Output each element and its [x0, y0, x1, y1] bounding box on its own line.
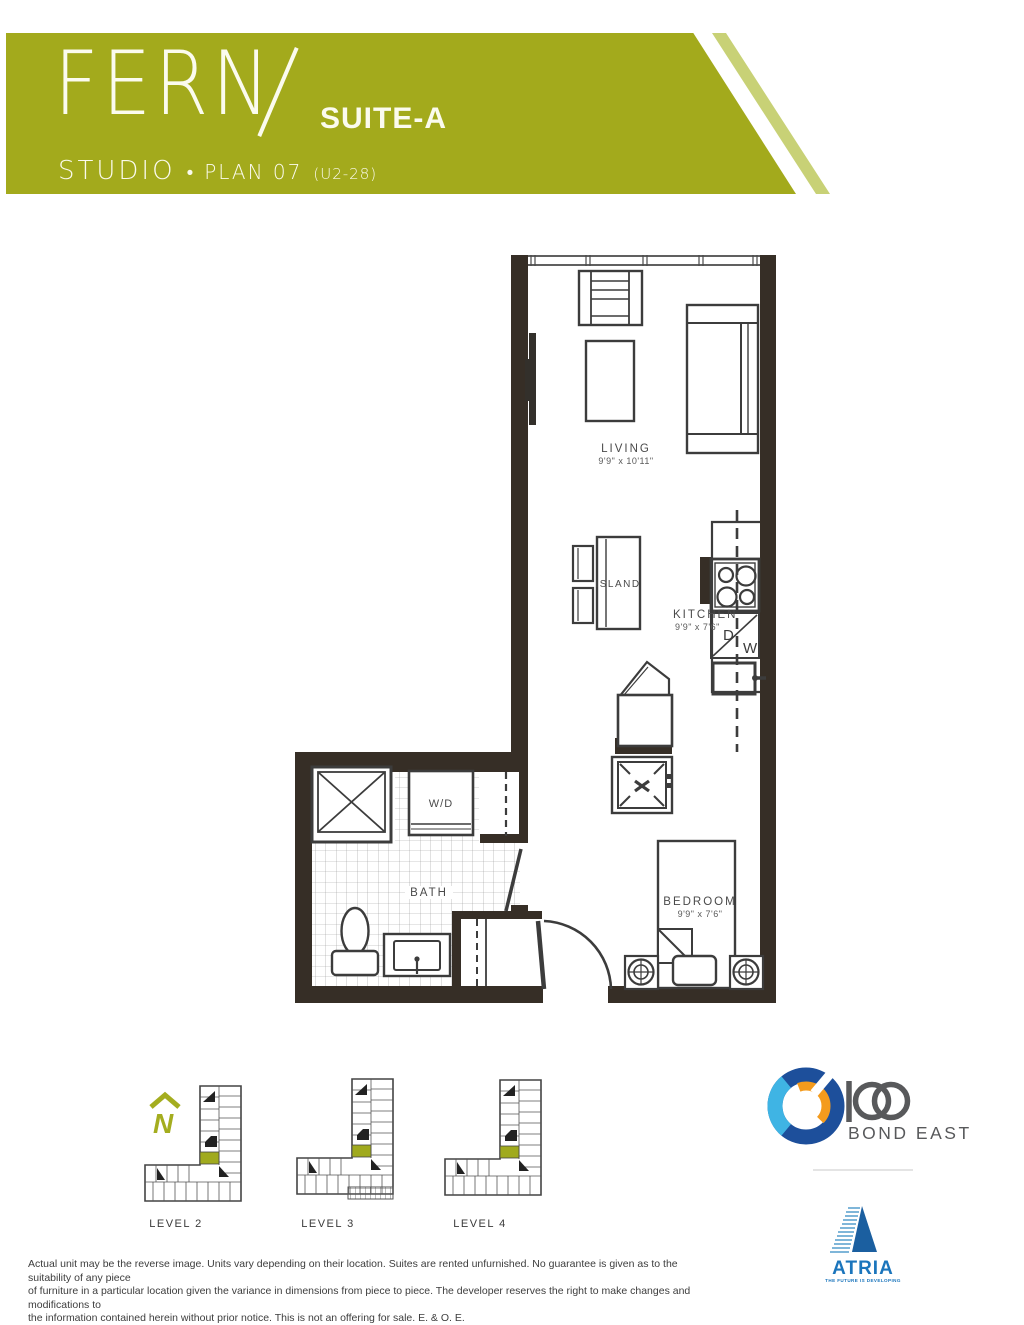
nightstand-lamp-left — [625, 956, 658, 989]
north-letter: N — [153, 1108, 174, 1139]
level-2-label: LEVEL 2 — [149, 1218, 203, 1230]
floor-plan-svg: LIVING 9'9" x 10'11" — [0, 0, 1024, 1325]
bath-label-group: BATH — [405, 886, 453, 899]
island-stools — [573, 546, 593, 623]
living-room — [525, 271, 758, 453]
living-dims: 9'9" x 10'11" — [598, 456, 653, 466]
island-label: ISLAND — [595, 579, 640, 590]
utility-closet — [612, 757, 672, 813]
window-wall — [528, 255, 760, 266]
entry — [461, 919, 611, 989]
suite-floor-plan: LIVING 9'9" x 10'11" — [295, 255, 776, 1003]
atria-logo: ATRIA THE FUTURE IS DEVELOPING — [825, 1206, 901, 1283]
wd-label-group: W/D — [429, 798, 453, 810]
level-3-label: LEVEL 3 — [301, 1218, 355, 1230]
pantry-cabinet — [618, 662, 672, 746]
coffee-table — [586, 341, 634, 421]
kitchen-label: KITCHEN — [673, 609, 737, 621]
kitchen-dims: 9'9" x 7'6" — [675, 622, 720, 632]
disclaimer-text: Actual unit may be the reverse image. Un… — [28, 1258, 718, 1325]
bond-circle-icon — [775, 1070, 837, 1137]
bedroom-dims: 9'9" x 7'6" — [678, 909, 723, 919]
disclaimer-line-2: of furniture in a particular location gi… — [28, 1285, 718, 1312]
bedroom-label: BEDROOM — [663, 896, 736, 908]
bond-east-wordmark: BOND EAST — [848, 1123, 972, 1143]
brochure-page: FERN SUITE-A STUDIO • PLAN 07 (U2-28) — [0, 0, 1024, 1325]
pillow — [673, 956, 716, 985]
bath-label: BATH — [410, 887, 448, 899]
disclaimer-line-1: Actual unit may be the reverse image. Un… — [28, 1258, 718, 1285]
stove — [711, 559, 759, 611]
dishwasher-letter-w: W — [743, 640, 758, 657]
kitchen — [573, 510, 766, 752]
disclaimer-line-3: the information contained herein without… — [28, 1312, 718, 1325]
entry-door-swing — [544, 921, 611, 989]
dishwasher-letter-d: D — [723, 627, 734, 644]
atria-tagline: THE FUTURE IS DEVELOPING — [825, 1278, 901, 1283]
atria-mark-icon — [830, 1206, 877, 1252]
north-arrow-icon: N — [151, 1095, 179, 1139]
vanity-sink — [384, 934, 450, 976]
level-4-label: LEVEL 4 — [453, 1218, 507, 1230]
bond-number-glyph — [849, 1081, 908, 1122]
armchair — [579, 271, 642, 325]
keyplan-level-4 — [445, 1080, 541, 1195]
nightstand-lamp-right — [730, 956, 763, 989]
shower — [312, 767, 391, 842]
sofa — [687, 305, 758, 453]
kitchen-sink — [713, 663, 766, 694]
bond-east-logo: BOND EAST — [775, 1070, 972, 1170]
keyplan-level-3 — [297, 1079, 393, 1199]
atria-wordmark: ATRIA — [832, 1258, 894, 1279]
wd-label: W/D — [429, 798, 453, 810]
keyplan-level-2 — [145, 1086, 241, 1201]
living-label: LIVING — [601, 443, 651, 455]
